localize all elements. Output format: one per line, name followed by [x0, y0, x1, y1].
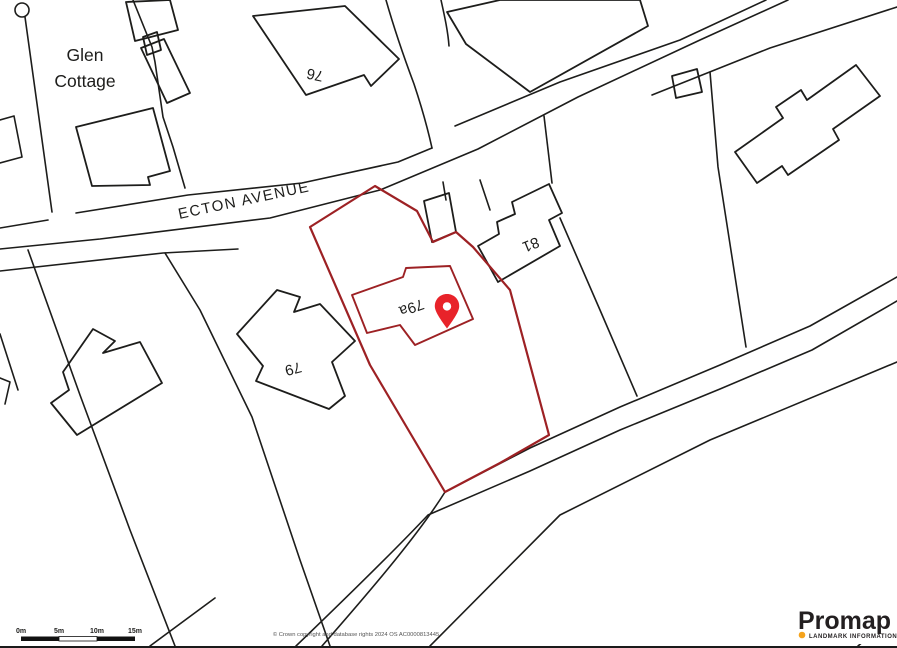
- scale-segment-1: [21, 637, 59, 642]
- house-81-label: 81: [520, 233, 542, 255]
- landmark-tagline: LANDMARK INFORMATION: [809, 634, 897, 640]
- plot-79a-label: 79a: [396, 295, 426, 319]
- scale-label-5m: 5m: [54, 628, 64, 635]
- scale-label-10m: 10m: [90, 628, 104, 635]
- copyright-text: © Crown copyright and database rights 20…: [273, 631, 439, 638]
- site-plan-map[interactable]: Glen Cottage ECTON AVENUE 76 79 79a 81 0…: [0, 0, 897, 646]
- location-pin-icon[interactable]: [435, 294, 459, 329]
- scale-segment-3: [97, 637, 135, 642]
- logo-dot-icon: [799, 632, 806, 639]
- house-79-label: 79: [283, 358, 304, 379]
- scale-label-0m: 0m: [16, 628, 26, 635]
- glen-cottage-label-line1: Glen: [67, 45, 104, 65]
- scale-bar: 0m 5m 10m 15m: [16, 628, 142, 641]
- building-79: [237, 290, 355, 409]
- building-outlines: [51, 0, 880, 435]
- street-name-label: ECTON AVENUE: [177, 178, 312, 223]
- scale-label-15m: 15m: [128, 628, 142, 635]
- glen-cottage-building: [76, 108, 170, 186]
- pole-symbol-icon: [15, 3, 29, 17]
- scale-segment-2: [59, 637, 97, 642]
- map-labels: Glen Cottage ECTON AVENUE 76 79 79a 81: [54, 45, 541, 379]
- promap-logo-text: Promap: [798, 607, 891, 635]
- map-viewport[interactable]: Glen Cottage ECTON AVENUE 76 79 79a 81 0…: [0, 0, 897, 648]
- glen-cottage-label-line2: Cottage: [54, 71, 115, 91]
- house-76-label: 76: [305, 64, 325, 84]
- building-76: [253, 6, 399, 95]
- promap-logo: Promap LANDMARK INFORMATION: [770, 600, 897, 644]
